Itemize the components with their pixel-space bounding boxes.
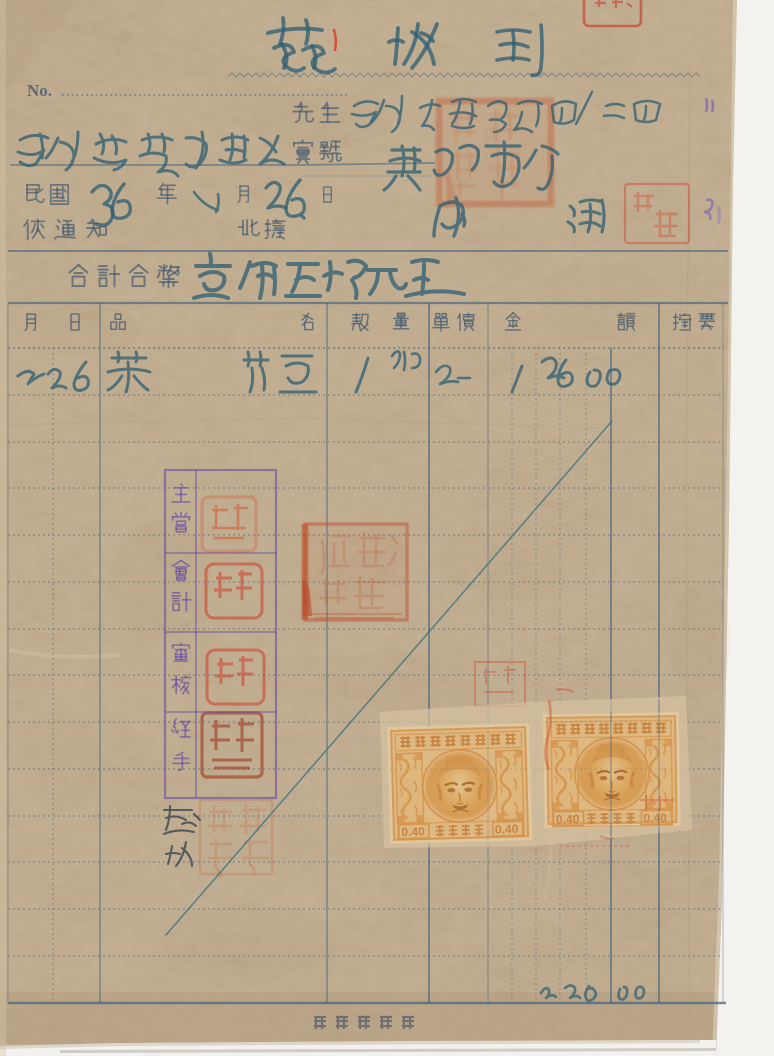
svg-text:0.40: 0.40 — [495, 822, 519, 837]
svg-text:0.40: 0.40 — [556, 812, 580, 826]
svg-text:0.40: 0.40 — [401, 824, 425, 839]
svg-text:No.: No. — [27, 81, 52, 100]
svg-text:0.40: 0.40 — [643, 811, 667, 825]
